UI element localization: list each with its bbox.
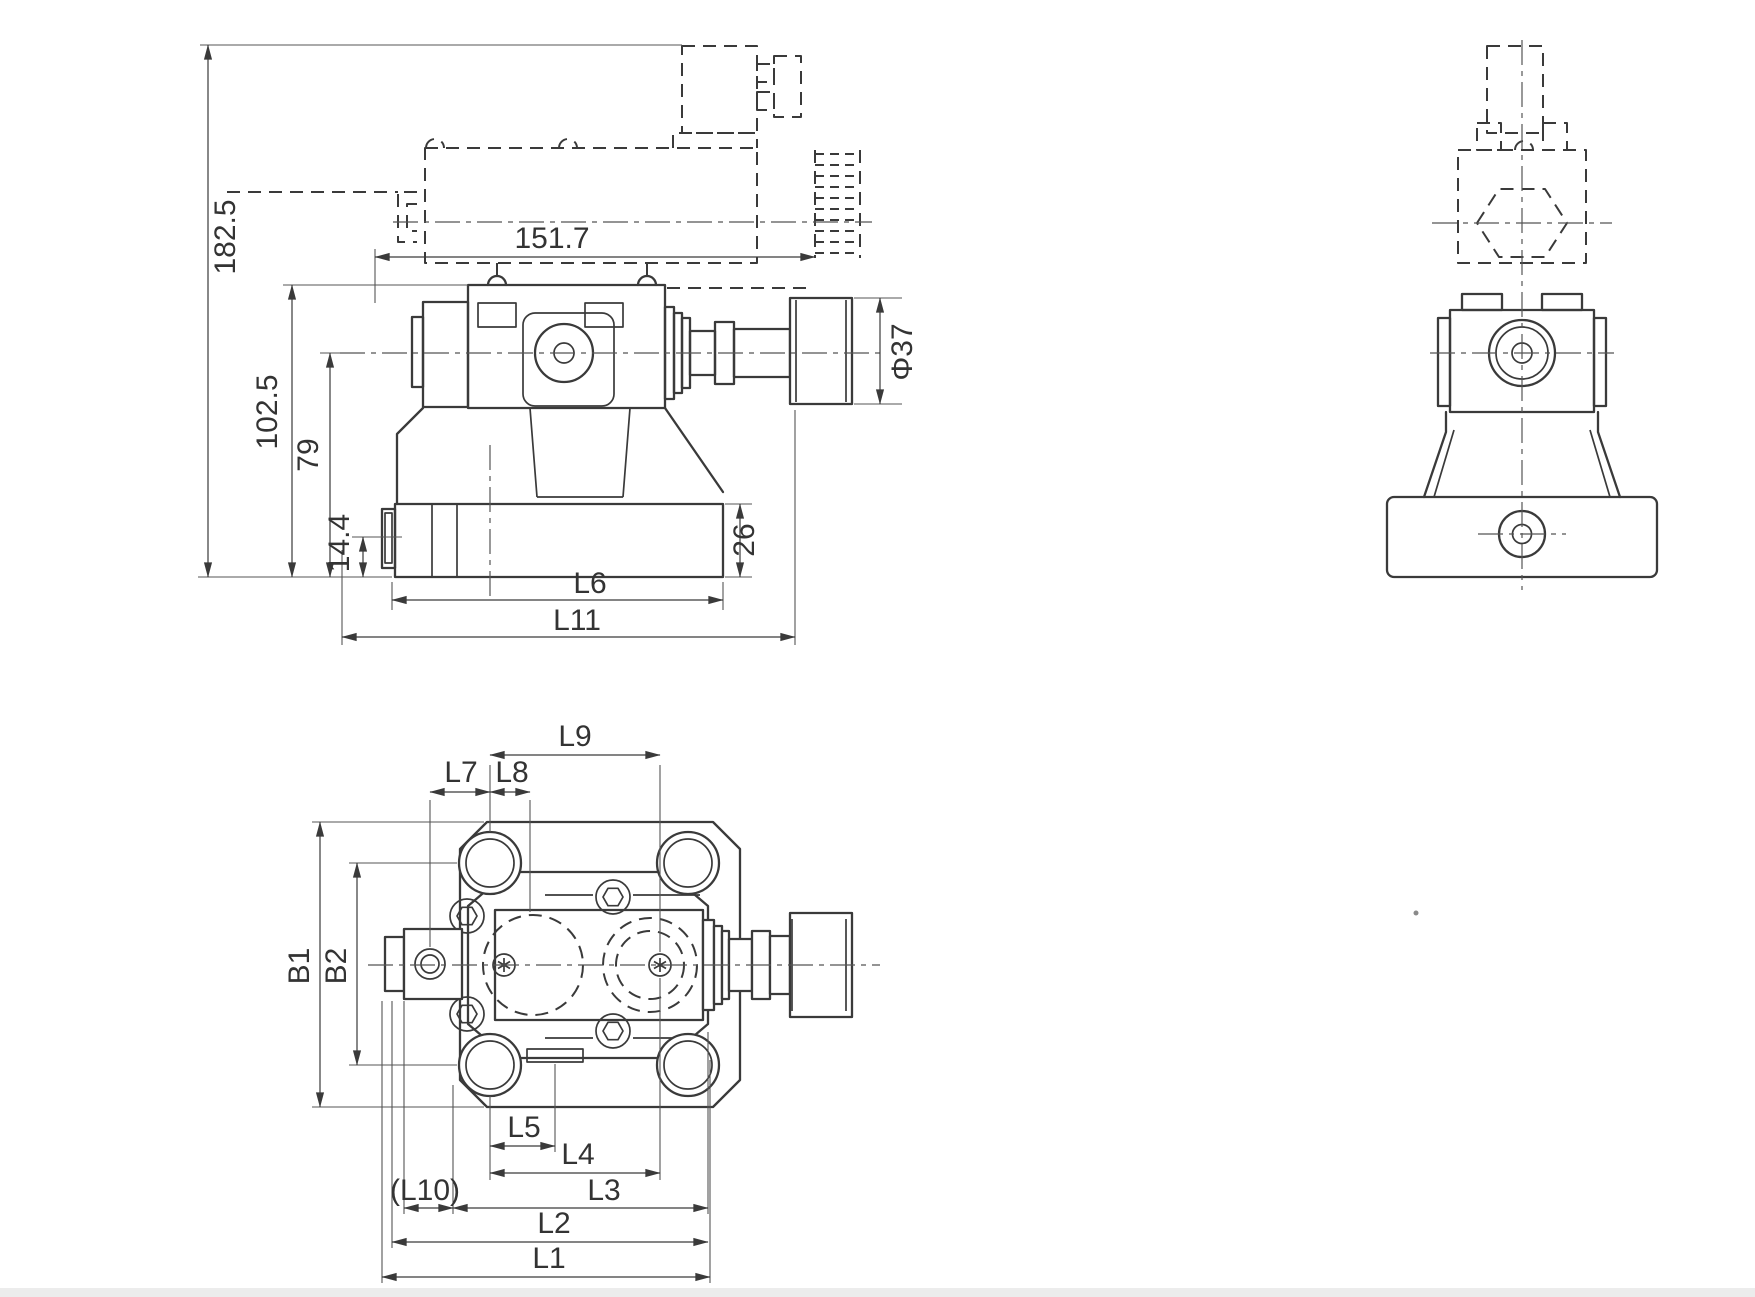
adjustment-knob-front: [790, 298, 852, 404]
dim-label-l3: L3: [587, 1174, 620, 1207]
side-centerlines: [1430, 40, 1614, 590]
dim-label-l10: (L10): [390, 1174, 460, 1207]
dim-label-l7: L7: [444, 756, 477, 789]
side-port: [382, 509, 395, 568]
dim-label-axis-height: 79: [292, 438, 325, 471]
dim-label-solenoid-length: 151.7: [514, 222, 589, 255]
side-view: [1387, 40, 1657, 590]
dim-label-port-height: 14.4: [323, 514, 356, 572]
dim-label-body-top-height: 102.5: [251, 374, 284, 449]
bottom-strip: [0, 1288, 1755, 1297]
dim-label-l1: L1: [532, 1242, 565, 1275]
top-port-block: [385, 929, 462, 999]
dim-label-base-length: L6: [573, 567, 606, 600]
base-block: [395, 504, 723, 577]
front-centerlines: [340, 222, 885, 600]
dim-label-base-height: 26: [728, 523, 761, 556]
dim-label-b1: B1: [283, 948, 316, 985]
dim-label-overall-height: 182.5: [209, 199, 242, 274]
drawing-page: 182.5 102.5 79 14.4 151.7 Φ37 26 L6 L11: [0, 0, 1755, 1297]
dim-label-l9: L9: [558, 720, 591, 753]
dim-label-overall-length: L11: [553, 604, 601, 637]
top-dimensions: L9 L7 L8 B1 B2 L5 L4 (L10) L3 L2 L1: [283, 720, 710, 1283]
valve-dimension-drawing: 182.5 102.5 79 14.4 151.7 Φ37 26 L6 L11: [0, 0, 1755, 1297]
front-view: 182.5 102.5 79 14.4 151.7 Φ37 26 L6 L11: [198, 45, 919, 645]
front-valve-body: [382, 276, 852, 577]
pedestal-left: [397, 408, 423, 504]
phantom-knurl-stripes: [815, 154, 860, 253]
dim-label-l4: L4: [561, 1138, 594, 1171]
pedestal-right: [665, 408, 723, 492]
stray-dot: [1414, 911, 1419, 916]
dim-label-l2: L2: [537, 1207, 570, 1240]
dim-label-l8: L8: [495, 756, 528, 789]
dim-label-knob-diameter: Φ37: [886, 323, 919, 380]
dim-label-l5: L5: [507, 1111, 540, 1144]
dim-label-b2: B2: [320, 948, 353, 985]
top-view: L9 L7 L8 B1 B2 L5 L4 (L10) L3 L2 L1: [283, 720, 880, 1283]
